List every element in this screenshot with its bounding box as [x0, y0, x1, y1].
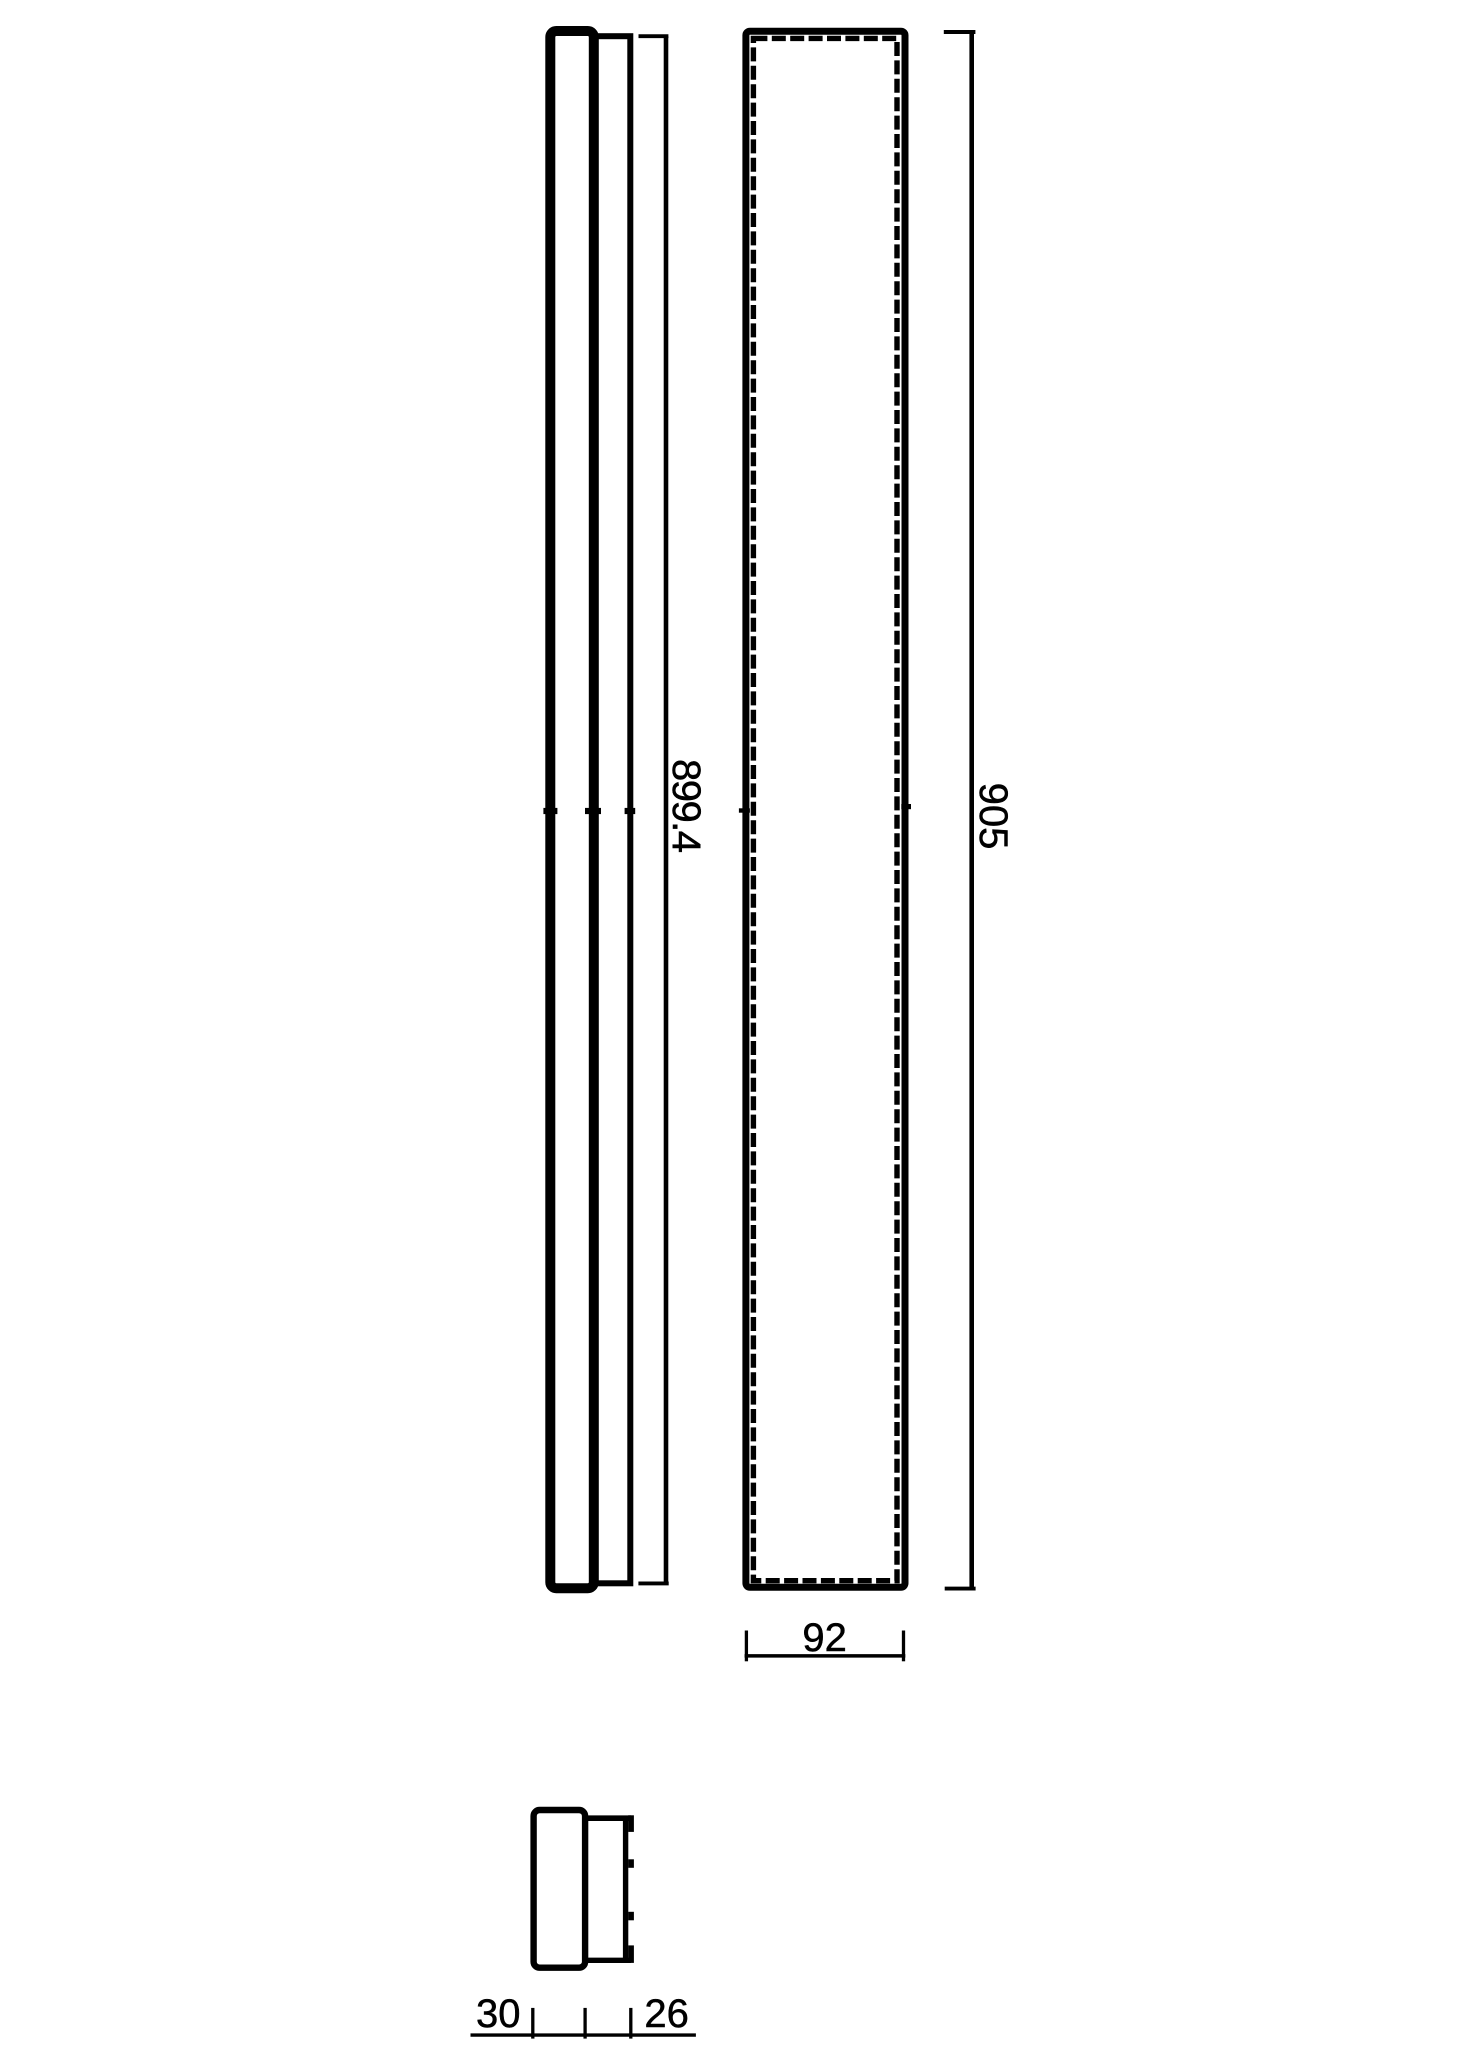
svg-text:30: 30 [476, 1992, 521, 2036]
svg-text:899.4: 899.4 [664, 759, 708, 853]
svg-text:92: 92 [802, 1616, 847, 1660]
svg-text:905: 905 [971, 783, 1015, 850]
svg-text:26: 26 [644, 1992, 689, 2036]
